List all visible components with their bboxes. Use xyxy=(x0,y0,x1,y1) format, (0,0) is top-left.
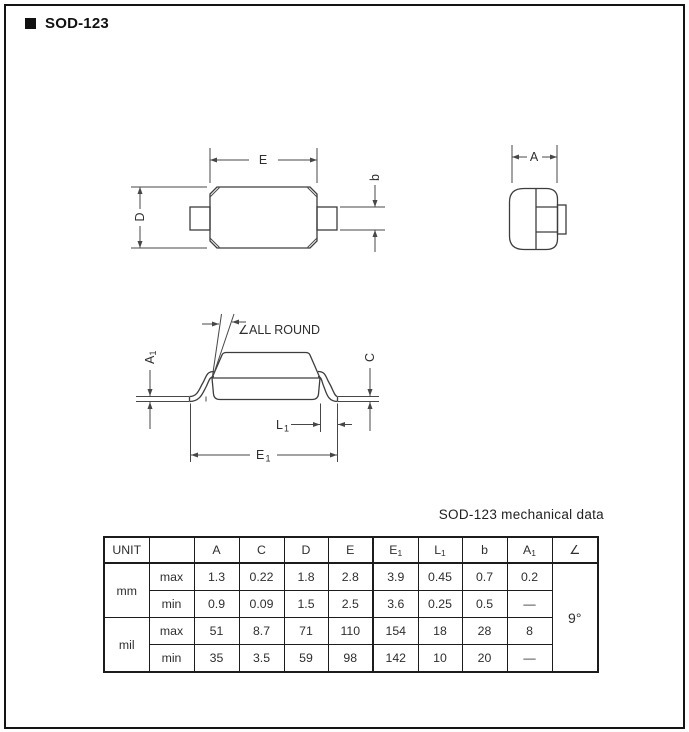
svg-text:1: 1 xyxy=(284,424,289,434)
svg-text:1: 1 xyxy=(148,350,158,355)
value-cell: 0.2 xyxy=(507,563,552,591)
dim-label-d: D xyxy=(133,212,147,221)
table-row: min 0.9 0.09 1.5 2.5 3.6 0.25 0.5 — xyxy=(104,591,598,618)
value-cell: — xyxy=(507,591,552,618)
svg-text:1: 1 xyxy=(266,454,271,464)
dim-label-l1: L xyxy=(276,418,283,432)
col-header-unit: UNIT xyxy=(104,537,149,563)
value-cell: 18 xyxy=(418,618,462,645)
col-header-angle: ∠ xyxy=(552,537,598,563)
right-lead xyxy=(317,207,337,230)
limit-cell: min xyxy=(149,591,194,618)
value-cell: 3.5 xyxy=(239,645,284,673)
value-cell: 142 xyxy=(373,645,418,673)
value-cell: 28 xyxy=(462,618,507,645)
dim-label-b: b xyxy=(368,174,382,181)
side-view-drawing: ∠ ALL ROUND A 1 C L 1 xyxy=(136,314,379,464)
value-cell: 2.8 xyxy=(328,563,373,591)
table-row: mil max 51 8.7 71 110 154 18 28 8 xyxy=(104,618,598,645)
col-header-d: D xyxy=(284,537,328,563)
dim-label-a: A xyxy=(530,150,539,164)
end-view-drawing: A xyxy=(510,145,567,250)
table-row: mm max 1.3 0.22 1.8 2.8 3.9 0.45 0.7 0.2… xyxy=(104,563,598,591)
dim-label-e: E xyxy=(259,153,267,167)
left-lead xyxy=(190,207,210,230)
angle-note-label: ALL ROUND xyxy=(249,323,320,337)
package-drawings: E D b A xyxy=(0,0,689,500)
top-view-drawing: E D b xyxy=(131,148,385,252)
value-cell: 59 xyxy=(284,645,328,673)
limit-cell: max xyxy=(149,563,194,591)
end-lead-tab xyxy=(558,205,567,234)
datasheet-page: SOD-123 E xyxy=(0,0,689,732)
value-cell: 154 xyxy=(373,618,418,645)
col-header-e: E xyxy=(328,537,373,563)
table-row: min 35 3.5 59 98 142 10 20 — xyxy=(104,645,598,673)
value-cell: 51 xyxy=(194,618,239,645)
unit-cell: mm xyxy=(104,563,149,618)
value-cell: 98 xyxy=(328,645,373,673)
angle-value-cell: 9° xyxy=(552,563,598,672)
mechanical-data-table: UNIT A C D E E1 L1 b A1 ∠ mm max 1.3 0.2… xyxy=(103,536,599,673)
value-cell: 0.09 xyxy=(239,591,284,618)
value-cell: 20 xyxy=(462,645,507,673)
col-header-a: A xyxy=(194,537,239,563)
col-header-a1: A1 xyxy=(507,537,552,563)
value-cell: 10 xyxy=(418,645,462,673)
value-cell: 1.8 xyxy=(284,563,328,591)
angle-symbol: ∠ xyxy=(238,322,249,337)
col-header-e1: E1 xyxy=(373,537,418,563)
value-cell: 3.6 xyxy=(373,591,418,618)
value-cell: 0.9 xyxy=(194,591,239,618)
value-cell: — xyxy=(507,645,552,673)
dim-label-e1: E xyxy=(256,448,264,462)
value-cell: 35 xyxy=(194,645,239,673)
value-cell: 2.5 xyxy=(328,591,373,618)
value-cell: 0.7 xyxy=(462,563,507,591)
table-header-row: UNIT A C D E E1 L1 b A1 ∠ xyxy=(104,537,598,563)
value-cell: 0.5 xyxy=(462,591,507,618)
value-cell: 110 xyxy=(328,618,373,645)
value-cell: 0.45 xyxy=(418,563,462,591)
limit-cell: max xyxy=(149,618,194,645)
value-cell: 0.25 xyxy=(418,591,462,618)
table-title: SOD-123 mechanical data xyxy=(439,507,604,522)
col-header-l1: L1 xyxy=(418,537,462,563)
col-header-b: b xyxy=(462,537,507,563)
value-cell: 8.7 xyxy=(239,618,284,645)
unit-cell: mil xyxy=(104,618,149,673)
limit-cell: min xyxy=(149,645,194,673)
value-cell: 8 xyxy=(507,618,552,645)
value-cell: 1.3 xyxy=(194,563,239,591)
value-cell: 1.5 xyxy=(284,591,328,618)
col-header-c: C xyxy=(239,537,284,563)
value-cell: 3.9 xyxy=(373,563,418,591)
value-cell: 71 xyxy=(284,618,328,645)
col-header-blank xyxy=(149,537,194,563)
dim-label-c: C xyxy=(363,353,377,362)
value-cell: 0.22 xyxy=(239,563,284,591)
